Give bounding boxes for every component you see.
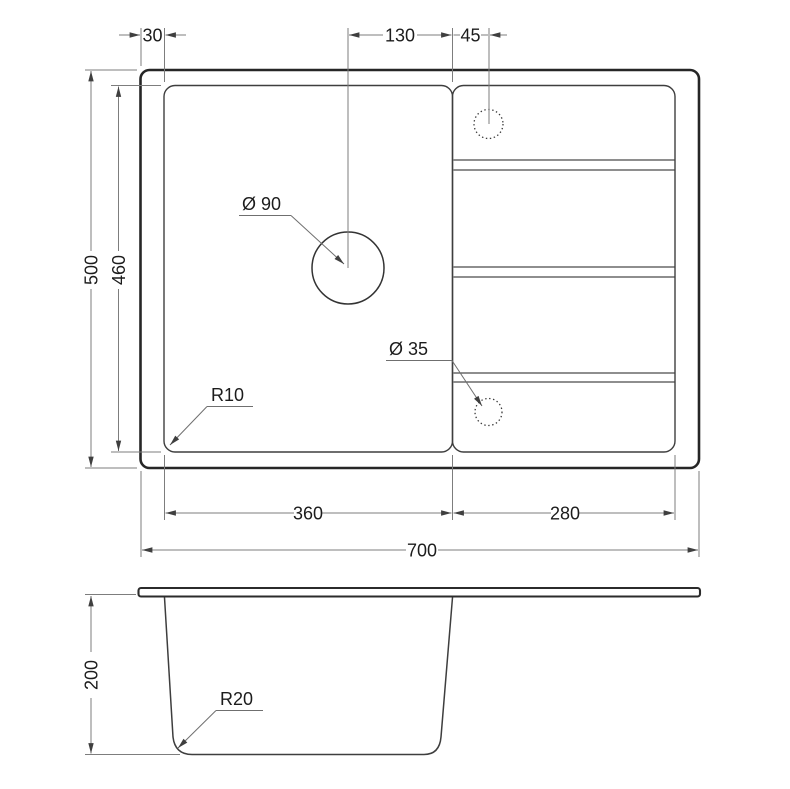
dim-280-label: 280 <box>550 504 580 524</box>
dim-200-label: 200 <box>82 660 102 690</box>
dim-500-label: 500 <box>82 255 102 285</box>
drawing-canvas: 30 130 45 500 460 360 <box>0 0 790 789</box>
small-hole-diameter-label: Ø 35 <box>389 339 428 359</box>
bowl-profile <box>165 598 453 755</box>
top-view <box>141 70 700 468</box>
dim-30-label: 30 <box>142 26 162 46</box>
dim-360-label: 360 <box>293 504 323 524</box>
dim-700-label: 700 <box>407 541 437 561</box>
dim-130-label: 130 <box>385 26 415 46</box>
sink-outer-edge <box>141 70 700 468</box>
side-view <box>139 588 701 755</box>
leader-line <box>178 711 216 749</box>
bowl-corner-radius-label: R10 <box>211 385 244 405</box>
sink-technical-drawing: 30 130 45 500 460 360 <box>0 0 790 789</box>
drain-diameter-label: Ø 90 <box>242 194 281 214</box>
dim-45-label: 45 <box>460 26 480 46</box>
dim-460-label: 460 <box>109 255 129 285</box>
bottom-corner-radius-label: R20 <box>220 689 253 709</box>
rim-profile <box>139 588 701 597</box>
